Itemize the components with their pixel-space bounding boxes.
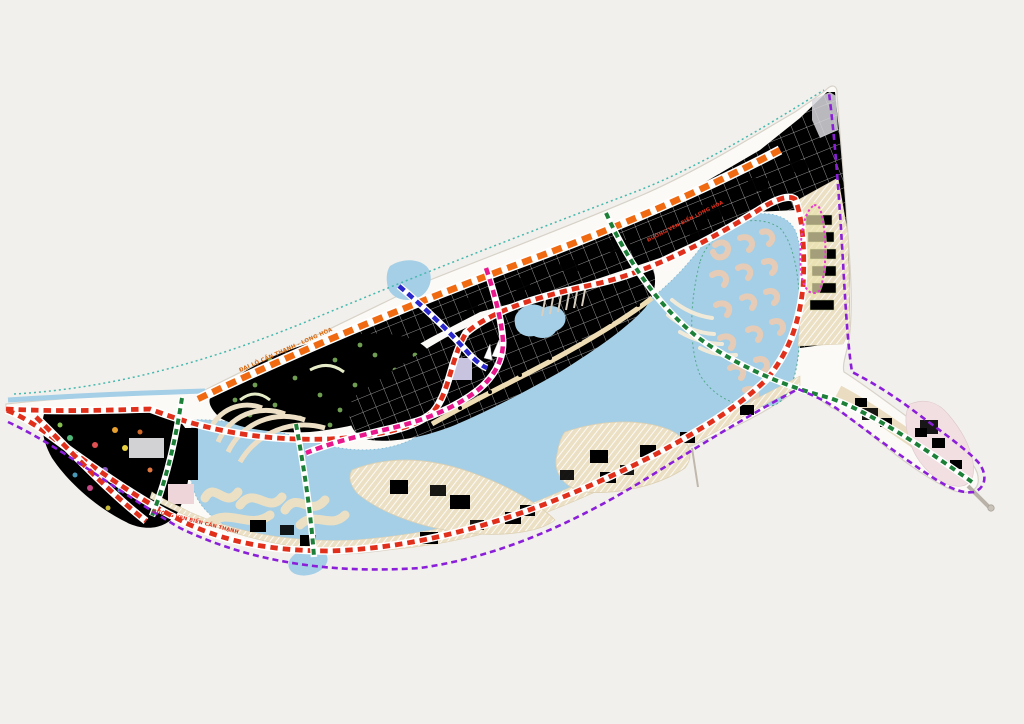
northeast-lagoon: [692, 221, 800, 407]
theme-park-parking: [129, 438, 165, 458]
tip-jetty-head: [988, 505, 994, 511]
lavender-pink-block: [168, 484, 194, 504]
map-canvas: ĐẠI LỘ CẦN THẠNH - LONG HÒA ĐƯỜNG VEN BI…: [0, 0, 1024, 724]
masterplan-map: ĐẠI LỘ CẦN THẠNH - LONG HÒA ĐƯỜNG VEN BI…: [0, 0, 1024, 724]
